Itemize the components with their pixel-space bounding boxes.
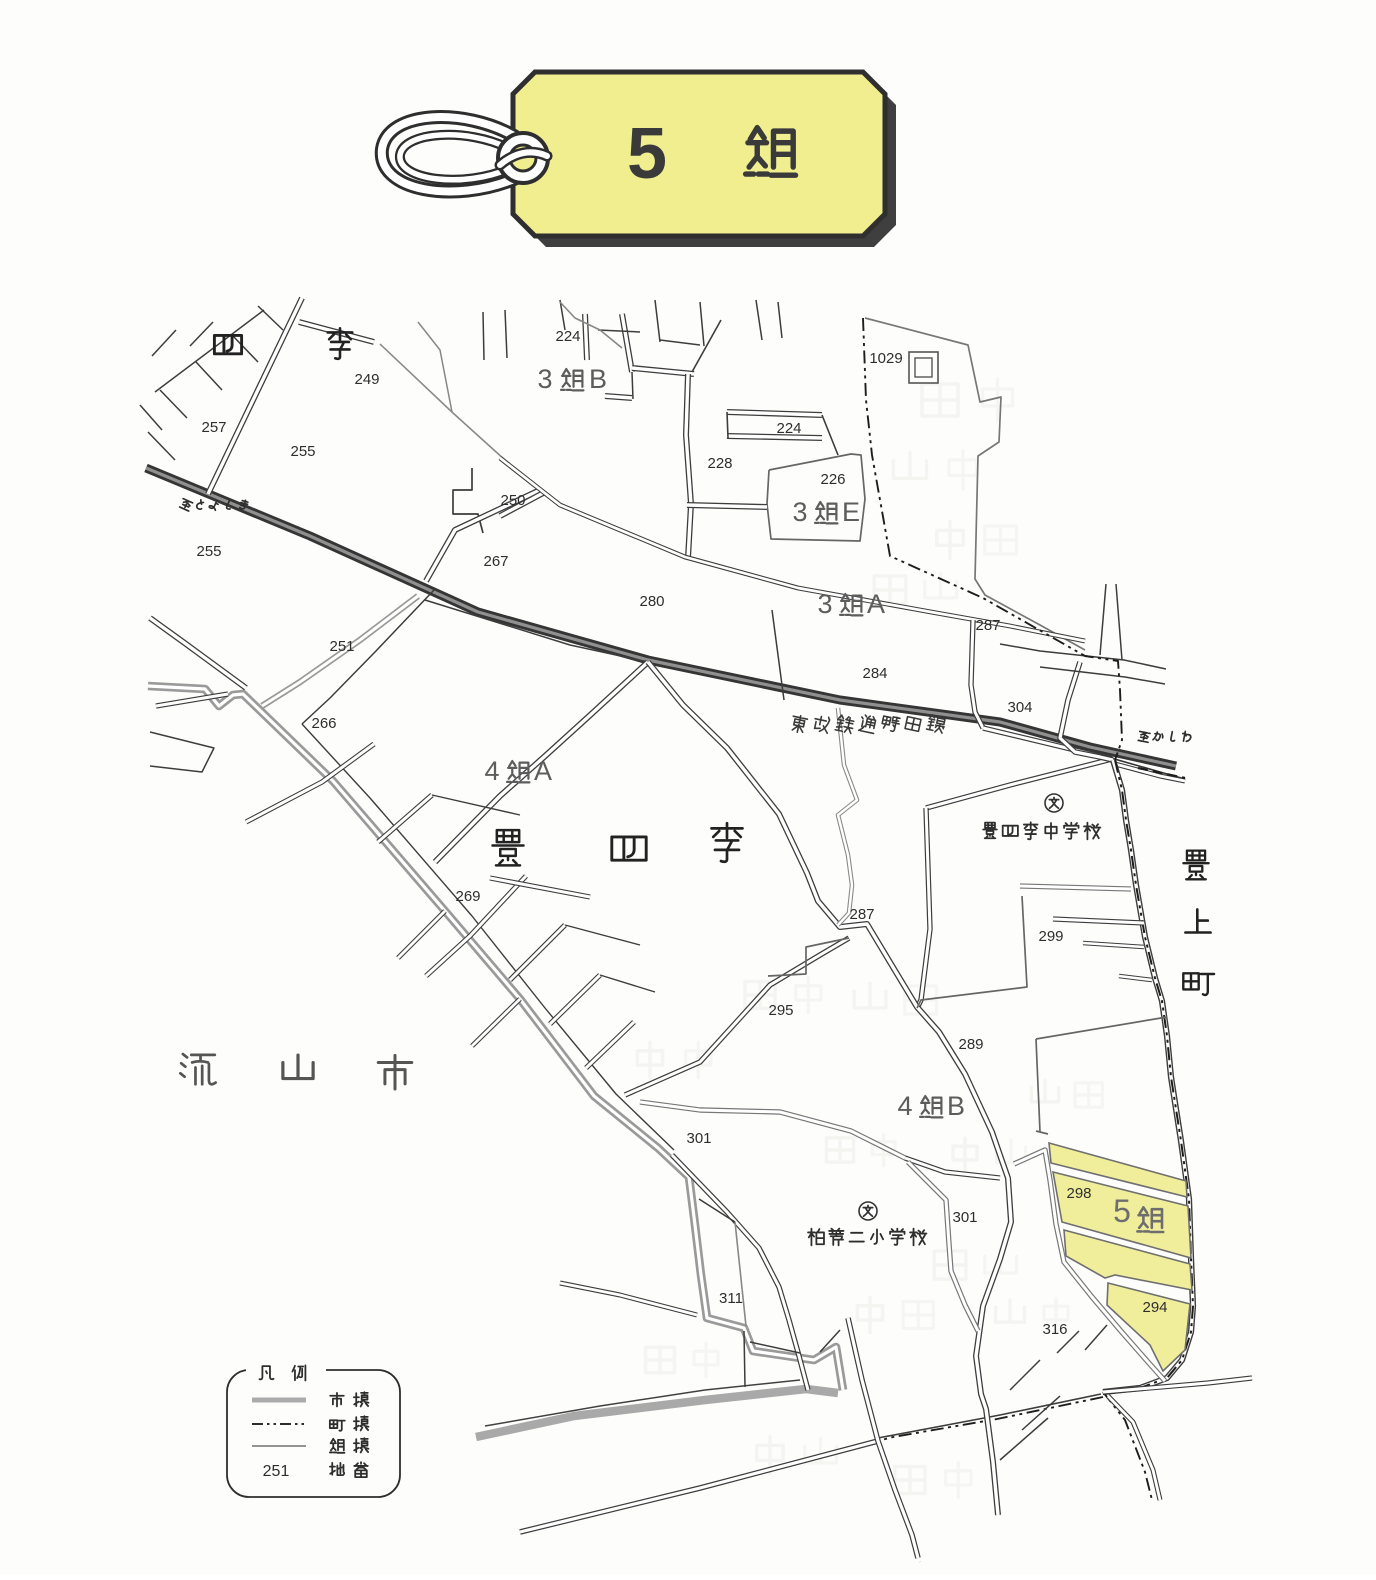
svg-text:4: 4	[897, 1091, 912, 1121]
svg-text:228: 228	[707, 455, 732, 472]
svg-text:B: B	[947, 1091, 965, 1121]
svg-text:289: 289	[958, 1036, 983, 1053]
svg-text:B: B	[589, 364, 607, 394]
svg-text:255: 255	[290, 443, 315, 460]
svg-text:298: 298	[1066, 1185, 1091, 1202]
svg-text:5: 5	[627, 114, 667, 194]
svg-text:267: 267	[483, 553, 508, 570]
svg-text:3: 3	[537, 364, 552, 394]
svg-text:4: 4	[484, 756, 499, 786]
svg-text:294: 294	[1142, 1299, 1167, 1316]
svg-text:311: 311	[719, 1290, 743, 1307]
svg-text:287: 287	[975, 617, 1000, 634]
svg-text:266: 266	[311, 715, 336, 732]
svg-text:224: 224	[776, 420, 801, 437]
svg-text:280: 280	[639, 593, 664, 610]
svg-text:251: 251	[263, 1463, 290, 1480]
svg-text:255: 255	[196, 543, 221, 560]
svg-text:249: 249	[354, 371, 379, 388]
svg-text:A: A	[867, 589, 885, 619]
svg-text:301: 301	[952, 1209, 977, 1226]
svg-text:251: 251	[329, 638, 354, 655]
svg-text:E: E	[842, 497, 860, 527]
svg-text:316: 316	[1042, 1321, 1067, 1338]
svg-text:269: 269	[455, 888, 480, 905]
svg-text:284: 284	[862, 665, 887, 682]
svg-text:226: 226	[820, 471, 845, 488]
svg-text:A: A	[534, 756, 552, 786]
svg-text:304: 304	[1007, 699, 1032, 716]
svg-text:299: 299	[1038, 928, 1063, 945]
svg-text:301: 301	[686, 1130, 711, 1147]
svg-text:5: 5	[1113, 1193, 1131, 1229]
svg-text:224: 224	[555, 328, 580, 345]
svg-text:295: 295	[768, 1002, 793, 1019]
svg-text:3: 3	[792, 497, 807, 527]
svg-text:1029: 1029	[869, 350, 902, 367]
svg-text:3: 3	[817, 589, 832, 619]
svg-text:287: 287	[849, 906, 874, 923]
svg-text:250: 250	[500, 492, 525, 509]
svg-text:257: 257	[201, 419, 226, 436]
